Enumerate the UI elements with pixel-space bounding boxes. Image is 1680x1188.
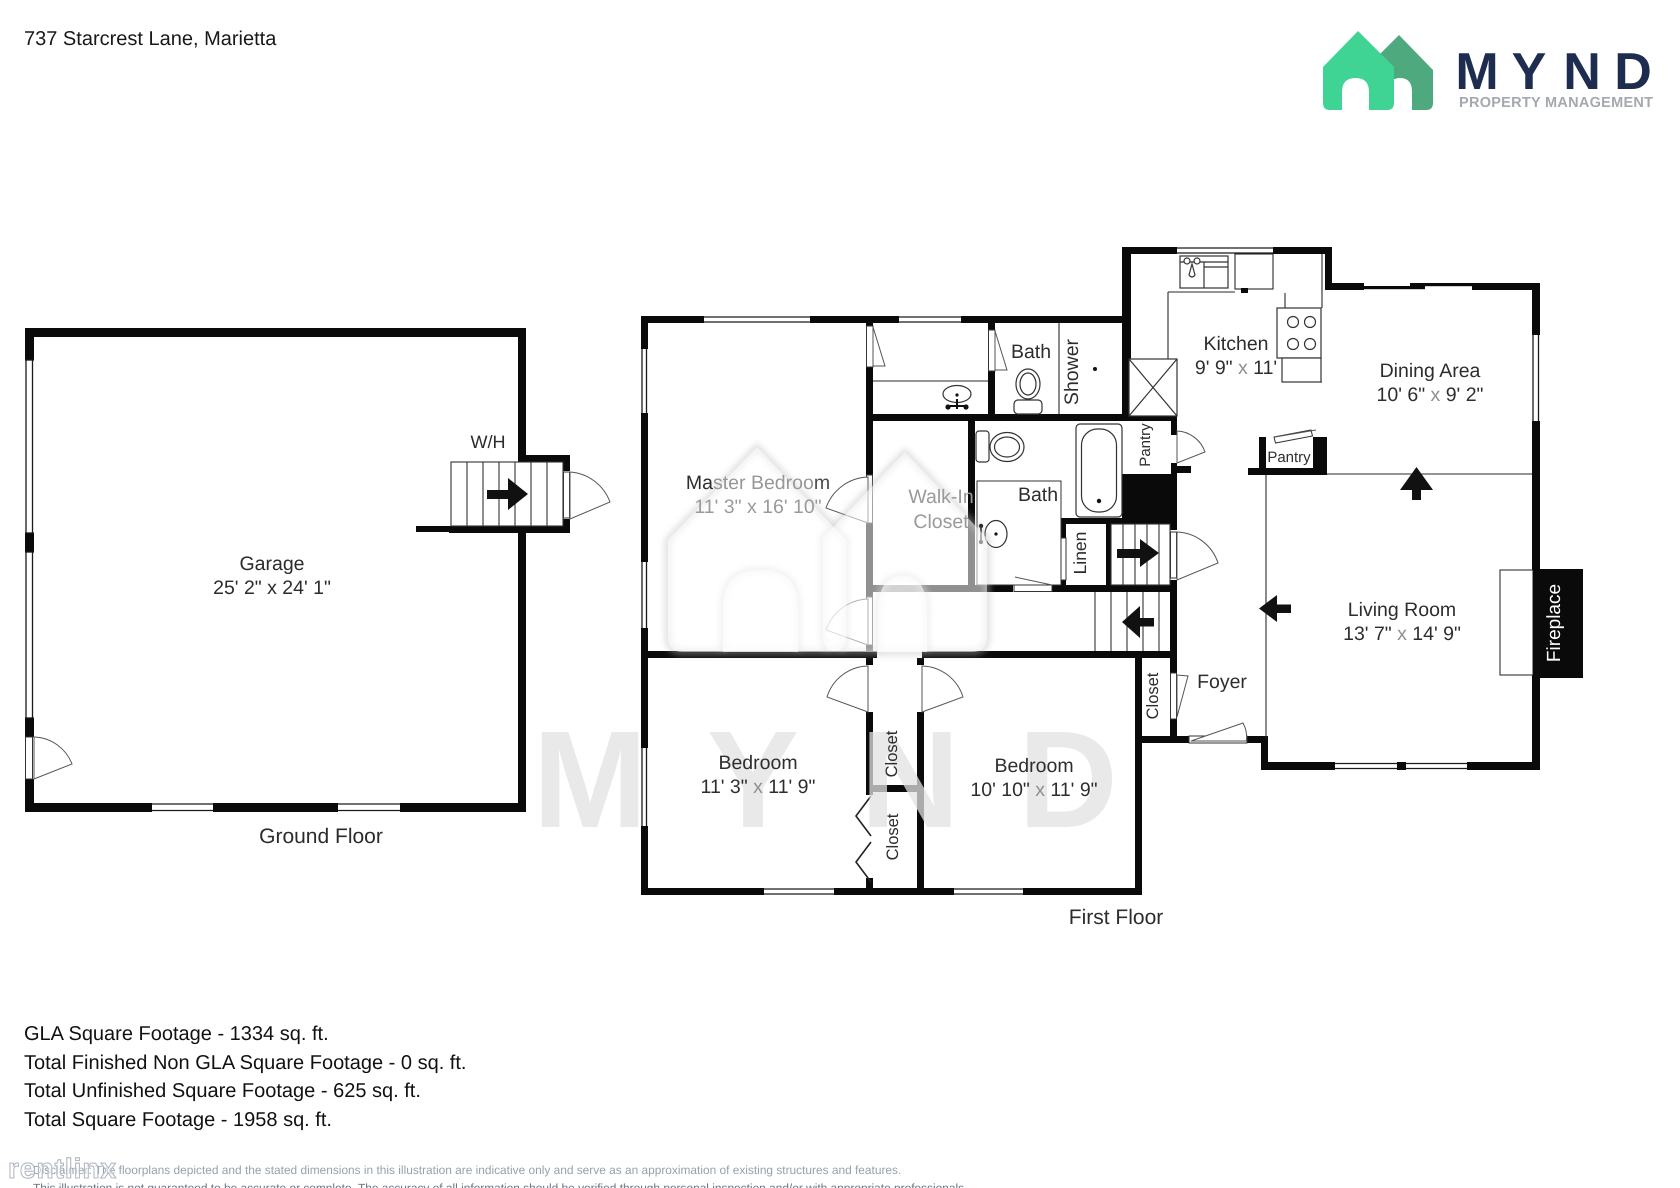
svg-text:Linen: Linen: [1070, 532, 1090, 575]
svg-text:13' 7" x 14' 9": 13' 7" x 14' 9": [1343, 623, 1461, 645]
svg-text:N: N: [860, 703, 960, 857]
svg-text:Total Square Footage - 1958 sq: Total Square Footage - 1958 sq. ft.: [24, 1109, 332, 1131]
svg-text:Fireplace: Fireplace: [1544, 584, 1565, 662]
svg-text:Bedroom: Bedroom: [718, 752, 797, 774]
svg-text:M: M: [533, 703, 648, 857]
svg-text:Living Room: Living Room: [1348, 599, 1456, 621]
svg-text:M: M: [1455, 43, 1498, 101]
svg-text:Walk-In: Walk-In: [908, 486, 973, 508]
svg-text:GLA Square Footage - 1334 sq.: GLA Square Footage - 1334 sq. ft.: [24, 1023, 329, 1045]
svg-text:25' 2" x 24' 1": 25' 2" x 24' 1": [213, 577, 331, 599]
svg-text:Bath: Bath: [1018, 484, 1058, 506]
svg-text:Dining Area: Dining Area: [1380, 360, 1481, 382]
svg-text:Pantry: Pantry: [1267, 449, 1311, 466]
svg-text:First Floor: First Floor: [1069, 906, 1164, 929]
svg-text:W/H: W/H: [471, 432, 506, 452]
svg-text:737 Starcrest Lane, Marietta: 737 Starcrest Lane, Marietta: [24, 28, 277, 50]
svg-text:10' 6" x 9' 2": 10' 6" x 9' 2": [1377, 384, 1484, 406]
svg-text:Closet: Closet: [1144, 672, 1162, 719]
svg-text:10' 10" x 11' 9": 10' 10" x 11' 9": [970, 779, 1097, 801]
svg-text:Bedroom: Bedroom: [994, 755, 1073, 777]
svg-text:Total Unfinished Square Footag: Total Unfinished Square Footage - 625 sq…: [24, 1080, 421, 1102]
svg-text:Closet: Closet: [883, 730, 901, 777]
svg-text:PROPERTY MANAGEMENT: PROPERTY MANAGEMENT: [1459, 95, 1655, 111]
svg-text:Master Bedroom: Master Bedroom: [686, 472, 830, 494]
svg-text:11' 3" x 11' 9": 11' 3" x 11' 9": [701, 776, 816, 798]
svg-text:Foyer: Foyer: [1197, 671, 1247, 693]
svg-text:Kitchen: Kitchen: [1203, 333, 1268, 355]
svg-text:Bath: Bath: [1011, 341, 1051, 363]
svg-text:N: N: [1563, 43, 1601, 101]
svg-text:Total Finished Non GLA Square: Total Finished Non GLA Square Footage - …: [24, 1052, 466, 1074]
svg-text:Y: Y: [1512, 43, 1547, 101]
svg-text:This illustration is not guara: This illustration is not guaranteed to b…: [33, 1181, 967, 1188]
svg-text:11' 3" x 16' 10": 11' 3" x 16' 10": [694, 496, 821, 518]
svg-text:Closet: Closet: [913, 511, 969, 533]
svg-text:Shower: Shower: [1061, 338, 1083, 405]
svg-text:Closet: Closet: [884, 813, 902, 860]
svg-text:rentlinx: rentlinx: [8, 1153, 117, 1184]
svg-text:Pantry: Pantry: [1137, 423, 1154, 467]
svg-text:Disclaimer: The floorplans dep: Disclaimer: The floorplans depicted and …: [33, 1163, 901, 1177]
svg-text:Garage: Garage: [239, 553, 304, 575]
svg-text:D: D: [1614, 43, 1652, 101]
svg-text:Ground Floor: Ground Floor: [259, 825, 383, 848]
svg-text:9' 9" x 11': 9' 9" x 11': [1195, 357, 1277, 379]
